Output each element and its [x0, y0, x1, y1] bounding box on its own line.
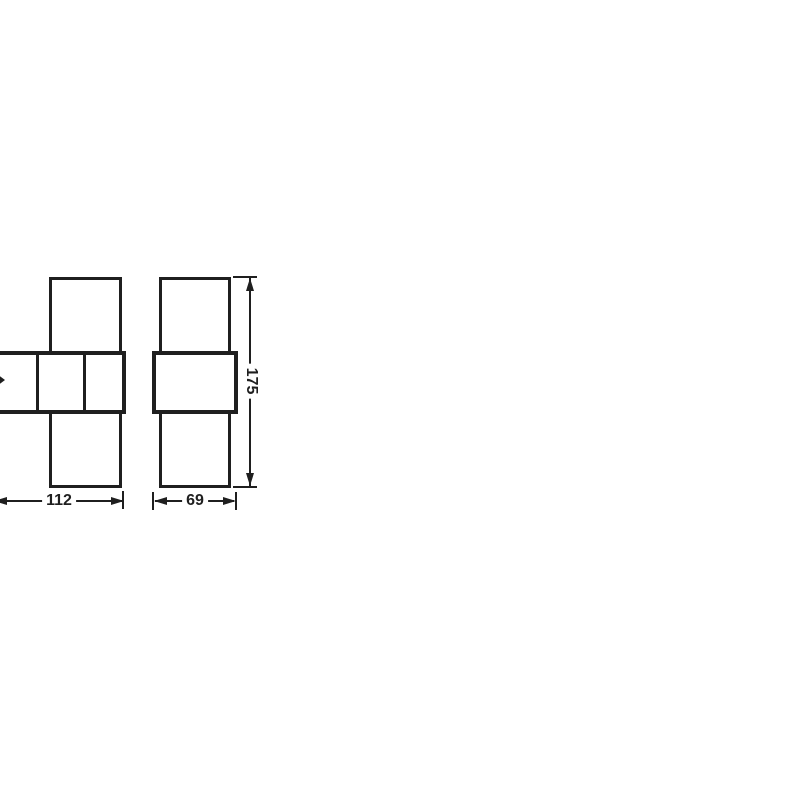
- dim-69-label: 69: [182, 493, 208, 509]
- dim-69-arrow-right-icon: [223, 497, 236, 505]
- dim-175-arrow-down-icon: [246, 473, 254, 486]
- side-view-mounting-band: [152, 351, 238, 414]
- front-view-upper-head: [49, 277, 122, 355]
- dimension-drawing: 112 69 175: [0, 0, 800, 800]
- dim-112-arrow-left-icon: [0, 497, 7, 505]
- front-view-mounting-band: [0, 351, 126, 414]
- dim-112-extension-tick: [122, 491, 124, 509]
- dim-69-arrow-left-icon: [154, 497, 167, 505]
- dim-175-label: 175: [243, 364, 259, 399]
- dim-175-extension-tick-bottom: [233, 486, 257, 488]
- side-view-lower-head: [159, 410, 231, 488]
- front-view-band-divider-left: [36, 353, 39, 412]
- dim-175-arrow-up-icon: [246, 278, 254, 291]
- cropped-arrowhead-fragment: [0, 374, 5, 386]
- front-view-band-divider-right: [83, 353, 86, 412]
- side-view-upper-head: [159, 277, 231, 355]
- front-view-lower-head: [49, 410, 122, 488]
- dim-112-label: 112: [42, 493, 76, 509]
